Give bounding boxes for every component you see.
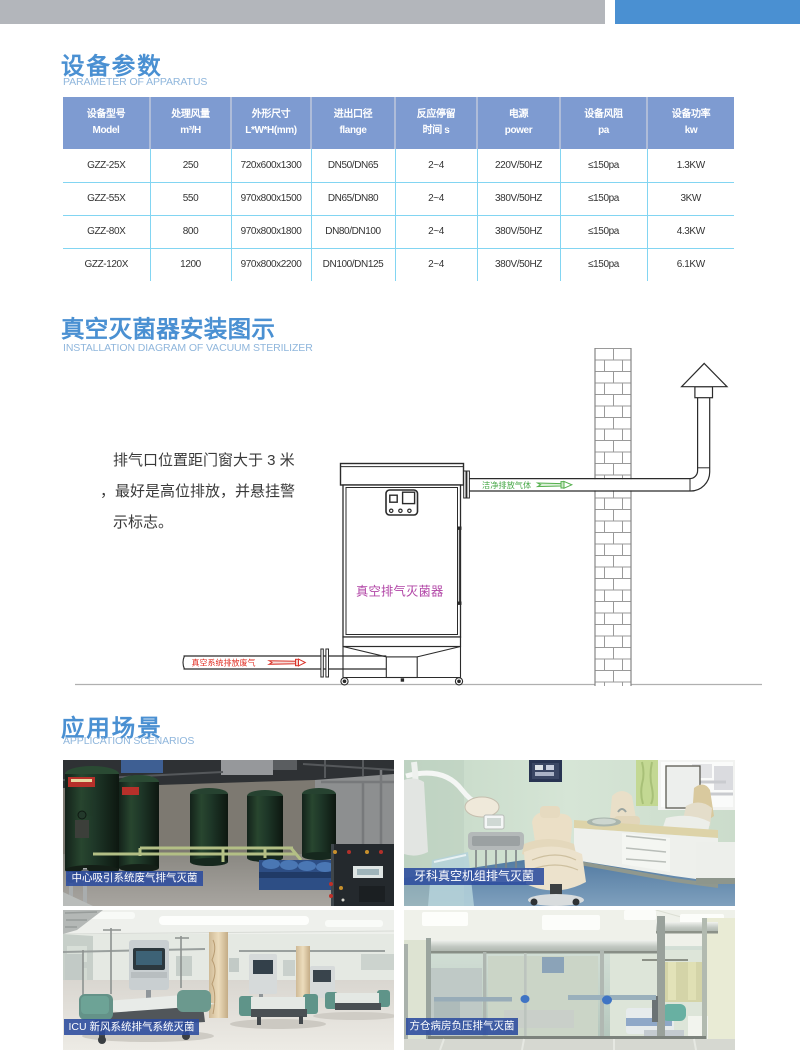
svg-text:真空系统排放废气: 真空系统排放废气	[192, 657, 256, 667]
svg-text:洁净排放气体: 洁净排放气体	[482, 480, 531, 490]
svg-text:真空排气灭菌器: 真空排气灭菌器	[356, 584, 443, 599]
